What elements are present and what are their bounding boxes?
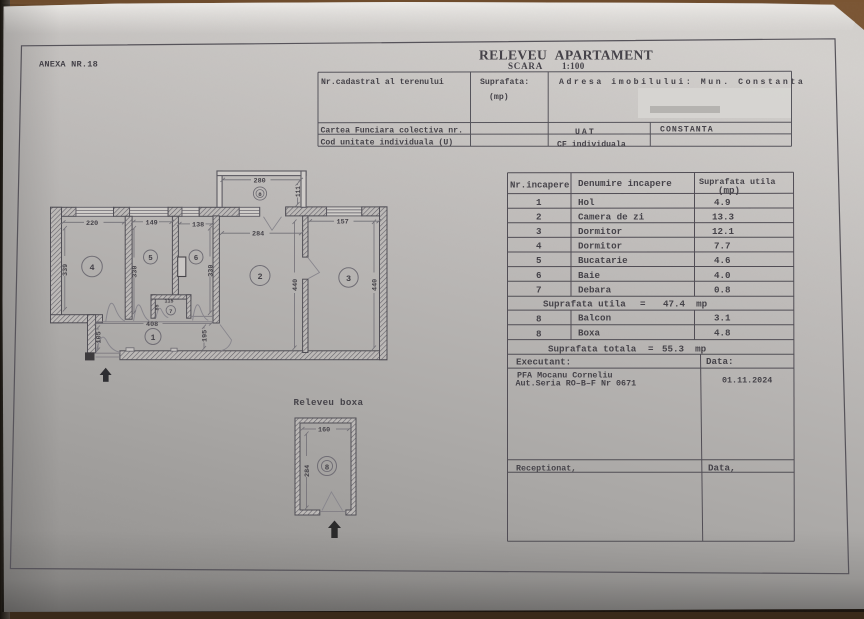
svg-text:4.9: 4.9 <box>714 197 731 208</box>
svg-text:13.3: 13.3 <box>712 211 735 222</box>
svg-text:3.1: 3.1 <box>714 313 731 324</box>
svg-text:280: 280 <box>254 177 266 185</box>
svg-text:Cod unitate individuala (U): Cod unitate individuala (U) <box>321 138 454 148</box>
svg-text:339: 339 <box>62 264 70 276</box>
svg-text:2: 2 <box>536 211 542 222</box>
svg-text:8: 8 <box>258 191 262 198</box>
svg-text:149: 149 <box>146 219 158 227</box>
svg-text:440: 440 <box>372 279 380 291</box>
svg-text:284: 284 <box>304 465 312 477</box>
svg-text:284: 284 <box>252 231 264 239</box>
svg-text:160: 160 <box>318 427 330 435</box>
svg-text:UAT: UAT <box>575 128 596 137</box>
svg-text:0.8: 0.8 <box>714 284 731 295</box>
svg-text:4.0: 4.0 <box>714 270 731 281</box>
svg-text:Nr.incapere: Nr.incapere <box>510 181 569 191</box>
svg-text:138: 138 <box>192 221 204 229</box>
svg-text:Hol: Hol <box>578 197 595 208</box>
svg-text:4: 4 <box>536 241 542 252</box>
svg-text:4.6: 4.6 <box>714 255 731 266</box>
svg-text:330: 330 <box>131 266 139 278</box>
svg-text:Suprafata:: Suprafata: <box>480 77 529 87</box>
svg-text:Denumire incapere: Denumire incapere <box>578 178 672 189</box>
svg-text:Executant:: Executant: <box>516 356 571 367</box>
svg-text:4: 4 <box>89 263 94 273</box>
svg-text:5: 5 <box>536 255 542 266</box>
svg-text:7: 7 <box>169 308 172 315</box>
svg-text:Nr.cadastral al terenului: Nr.cadastral al terenului <box>321 77 444 87</box>
svg-text:195: 195 <box>202 330 210 342</box>
svg-text:Suprafata utila: Suprafata utila <box>543 299 626 310</box>
svg-text:01.11.2024: 01.11.2024 <box>722 376 772 386</box>
svg-text:Data,: Data, <box>708 462 736 473</box>
svg-text:85: 85 <box>155 304 161 310</box>
svg-text:440: 440 <box>292 279 300 291</box>
svg-text:Aut.Seria RO–B–F Nr 0671: Aut.Seria RO–B–F Nr 0671 <box>516 379 637 389</box>
svg-text:8: 8 <box>536 313 542 324</box>
svg-text:Suprafata totala: Suprafata totala <box>548 343 637 354</box>
svg-text:ANEXA NR.18: ANEXA NR.18 <box>39 59 98 69</box>
svg-text:Adresa imobilului: Mun. Consta: Adresa imobilului: Mun. Constanta <box>559 77 805 87</box>
svg-text:8: 8 <box>536 329 542 340</box>
svg-text:Data:: Data: <box>706 356 734 367</box>
svg-text:111: 111 <box>295 186 302 197</box>
svg-text:SCARA: SCARA <box>508 61 543 71</box>
svg-text:CF individuala: CF individuala <box>557 139 626 149</box>
svg-text:Debara: Debara <box>578 284 612 295</box>
svg-text:2: 2 <box>257 272 262 282</box>
svg-text:1: 1 <box>151 334 156 343</box>
svg-text:7.7: 7.7 <box>714 241 731 252</box>
svg-text:Receptionat,: Receptionat, <box>516 464 576 474</box>
svg-text:47.4 mp: 47.4 mp <box>663 299 708 310</box>
svg-text:Cartea Funciara colectiva nr.: Cartea Funciara colectiva nr. <box>321 126 464 136</box>
svg-text:Boxa: Boxa <box>578 327 601 338</box>
svg-text:5: 5 <box>148 255 153 263</box>
svg-text:1: 1 <box>536 197 542 208</box>
svg-text:408: 408 <box>146 321 158 329</box>
svg-text:=: = <box>640 299 646 310</box>
svg-text:3: 3 <box>346 274 351 284</box>
svg-text:1:100: 1:100 <box>562 61 585 71</box>
svg-text:220: 220 <box>86 220 98 228</box>
svg-text:Dormitor: Dormitor <box>578 241 622 252</box>
svg-text:(mp): (mp) <box>489 92 509 102</box>
svg-text:Camera de zi: Camera de zi <box>578 211 645 222</box>
svg-text:55.3 mp: 55.3 mp <box>662 343 707 354</box>
svg-text:12.1: 12.1 <box>712 226 735 237</box>
svg-text:Balcon: Balcon <box>578 313 611 324</box>
svg-text:CONSTANTA: CONSTANTA <box>660 126 714 135</box>
svg-text:6: 6 <box>194 255 199 263</box>
svg-text:(mp): (mp) <box>718 185 740 196</box>
svg-text:Baie: Baie <box>578 270 601 281</box>
svg-text:330: 330 <box>207 265 215 277</box>
svg-text:3: 3 <box>536 226 542 237</box>
svg-text:157: 157 <box>337 219 349 227</box>
svg-text:Bucatarie: Bucatarie <box>578 255 628 266</box>
svg-text:105: 105 <box>96 331 104 343</box>
svg-text:8: 8 <box>325 464 330 472</box>
svg-text:4.8: 4.8 <box>714 327 731 338</box>
svg-text:7: 7 <box>536 284 542 295</box>
svg-text:6: 6 <box>536 270 542 281</box>
svg-text:115: 115 <box>165 299 174 305</box>
svg-text:=: = <box>648 343 654 354</box>
svg-text:Releveu boxa: Releveu boxa <box>294 397 364 408</box>
svg-text:Dormitor: Dormitor <box>578 226 622 237</box>
